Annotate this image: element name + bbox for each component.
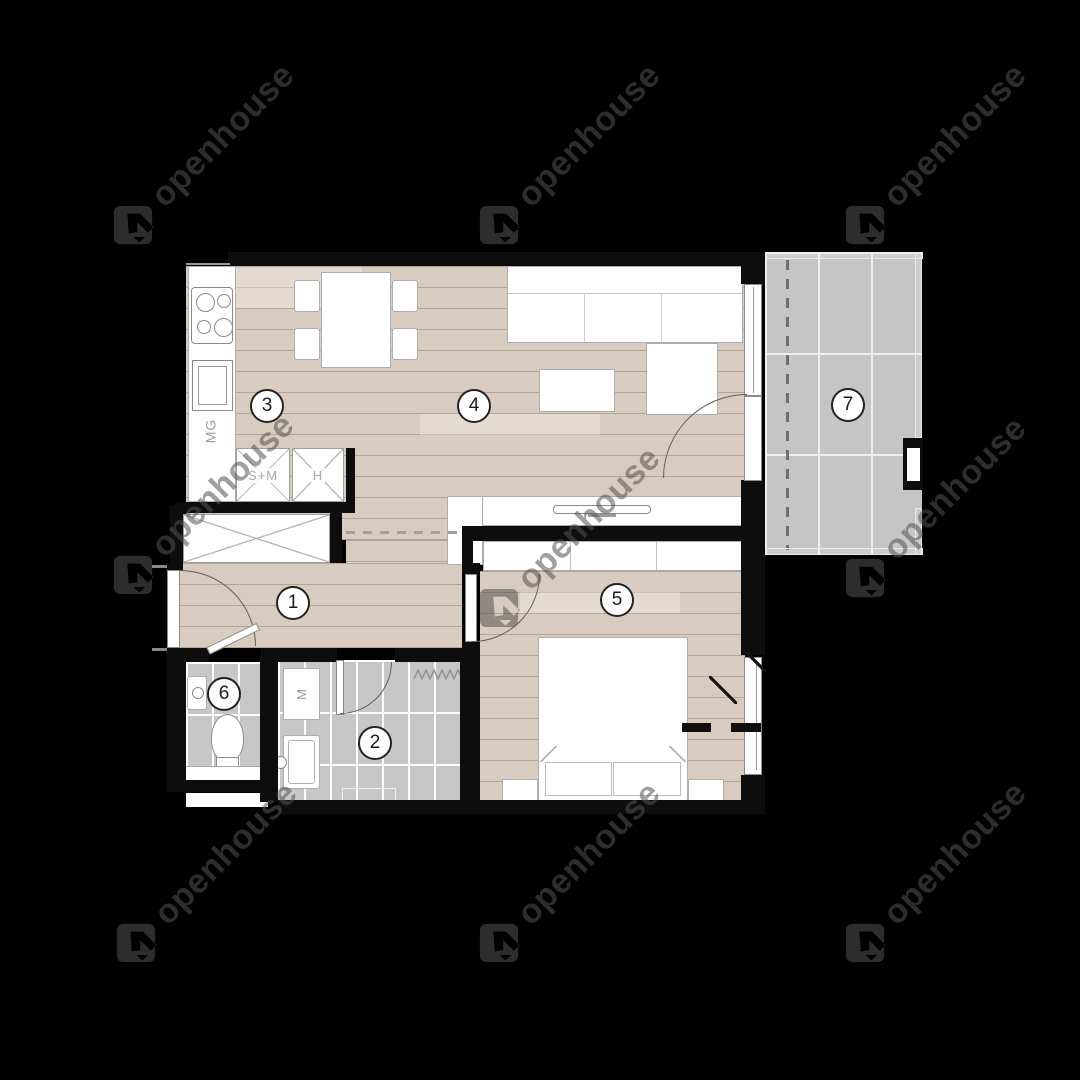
wall-bath-east: [460, 648, 480, 802]
wardrobe-h: H: [292, 448, 344, 502]
room-marker-balcony: 7: [831, 388, 865, 422]
burner-icon: [197, 320, 211, 334]
watermark: openhouse: [499, 943, 748, 1001]
room-marker-bathroom: 2: [358, 726, 392, 760]
watermark: openhouse: [865, 578, 1080, 636]
plank-highlight: [420, 414, 600, 435]
burner-icon: [217, 294, 231, 308]
sofa-seam: [584, 293, 585, 342]
wall-hall-bedroom-top: [462, 563, 480, 574]
wall-hall-wardrobe-right: [330, 513, 342, 563]
dining-chair: [294, 328, 320, 360]
openhouse-logo-icon: [92, 534, 174, 616]
openhouse-logo-icon: [92, 184, 174, 266]
cooktop: [191, 287, 233, 344]
openhouse-logo-icon: [824, 902, 906, 984]
blanket-fold-mark: [540, 746, 557, 762]
wall-stub-right-of-wardrobe: [346, 448, 355, 513]
bedroom-wardrobe: [483, 541, 742, 571]
openhouse-logo-icon: [95, 902, 177, 984]
watermark: openhouse: [865, 943, 1080, 1001]
entrance-door-leaf: [167, 570, 180, 648]
wall-kitchen-thin-edge: [186, 263, 230, 265]
sink-inner: [288, 740, 315, 784]
balcony-railing-right-upper: [915, 252, 922, 438]
wall-hall-west-upper: [170, 505, 183, 571]
wall-bedroom-south: [460, 800, 765, 814]
living-window: [744, 284, 762, 396]
planned-opening-dash: [731, 723, 761, 732]
dining-chair: [294, 280, 320, 312]
wall-wc-south: [166, 780, 270, 792]
balcony-railing-top: [765, 252, 923, 259]
bedroom-window: [744, 657, 762, 775]
hall-wardrobe: [183, 514, 330, 563]
sofa-seam: [661, 293, 662, 342]
dining-chair: [392, 328, 418, 360]
window-opening-slash: [742, 648, 766, 672]
dining-chair: [392, 280, 418, 312]
openhouse-logo-icon: [458, 902, 540, 984]
coffee-table: [539, 369, 615, 412]
facade-dashed-line: [786, 260, 789, 550]
room-marker-living: 4: [457, 389, 491, 423]
wardrobe-divider: [570, 542, 571, 570]
passage-floor: [346, 540, 462, 564]
dining-table: [321, 272, 391, 368]
wall-hall-south-3: [395, 648, 462, 662]
service-shaft: [186, 793, 268, 807]
open-boundary-dashed-line: [346, 531, 472, 534]
sofa: [507, 266, 743, 343]
oven: [192, 360, 233, 411]
wall-bathroom-south: [278, 800, 460, 814]
washing-machine: M: [283, 668, 320, 720]
wall-north: [228, 252, 745, 266]
floor-plan-image: MG S+M H: [0, 0, 1080, 1080]
pillow: [613, 762, 681, 796]
balcony-pillar-opening: [907, 448, 920, 481]
room-marker-kitchen: 3: [250, 389, 284, 423]
pillow: [545, 762, 612, 796]
microwave-label: MG: [188, 408, 232, 454]
wardrobe-sm: S+M: [236, 448, 290, 502]
balcony-railing-bottom: [765, 548, 923, 555]
tv-stand: [588, 514, 616, 517]
wall-living-east-upper: [741, 252, 765, 284]
sofa-backrest-line: [508, 293, 742, 294]
oven-inner: [198, 366, 227, 405]
burner-icon: [196, 293, 215, 312]
room-marker-bedroom: 5: [600, 583, 634, 617]
nightstand: [502, 779, 538, 801]
wall-bedroom-east-upper: [741, 541, 765, 655]
room-marker-hallway: 1: [276, 586, 310, 620]
wall-bedroom-east-lower: [741, 775, 765, 814]
room-marker-wc: 6: [207, 677, 241, 711]
planned-opening-dash: [682, 723, 711, 732]
nightstand: [688, 779, 724, 801]
window-opening-slash: [709, 676, 737, 704]
watermark: openhouse: [136, 943, 385, 1001]
toilet-bowl: [211, 714, 244, 762]
wall-tv: [462, 526, 745, 541]
tv: [553, 505, 651, 514]
blanket-fold-mark: [669, 746, 686, 762]
wall-tick: [152, 565, 167, 568]
bathroom-sink: [283, 735, 320, 789]
wardrobe-divider: [656, 542, 657, 570]
burner-icon: [214, 318, 233, 337]
wall-kitchen-south: [175, 502, 346, 513]
wc-basin-faucet-icon: [192, 687, 204, 699]
wall-wc-west: [166, 658, 186, 792]
wall-tick: [152, 648, 167, 651]
